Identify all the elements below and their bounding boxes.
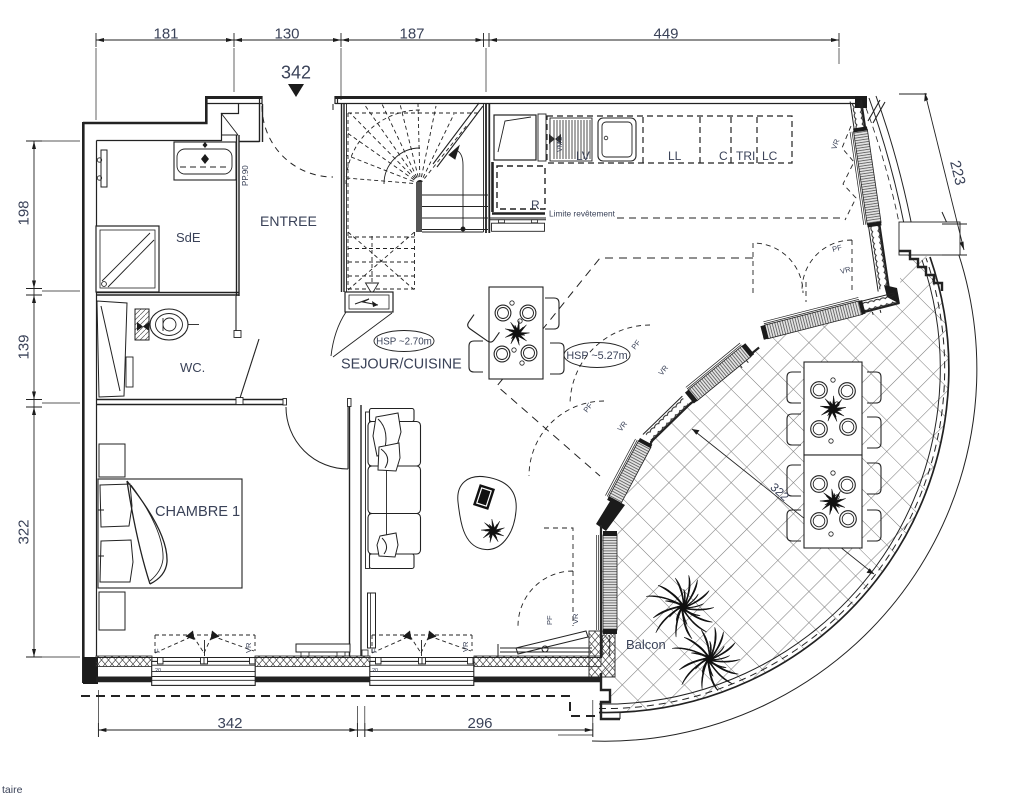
- svg-text:PF: PF: [545, 615, 554, 625]
- svg-text:ENTREE: ENTREE: [260, 213, 317, 229]
- svg-text:LC: LC: [762, 149, 778, 163]
- svg-text:322: 322: [16, 519, 33, 544]
- svg-text:R: R: [531, 198, 540, 212]
- svg-text:449: 449: [653, 26, 678, 43]
- svg-text:F: F: [153, 648, 162, 653]
- svg-text:Balcon: Balcon: [626, 637, 666, 652]
- svg-text:20: 20: [372, 668, 378, 674]
- svg-text:VMC: VMC: [557, 136, 564, 152]
- svg-text:PP.90: PP.90: [241, 165, 250, 186]
- svg-text:296: 296: [467, 715, 492, 732]
- svg-text:TRI: TRI: [736, 149, 755, 163]
- svg-text:VR: VR: [571, 613, 580, 624]
- svg-text:SEJOUR/CUISINE: SEJOUR/CUISINE: [341, 357, 462, 373]
- svg-text:130: 130: [274, 26, 299, 43]
- svg-text:187: 187: [399, 26, 424, 43]
- svg-text:LV: LV: [576, 149, 590, 163]
- svg-text:HSP ~2.70m: HSP ~2.70m: [376, 337, 432, 348]
- svg-text:139: 139: [16, 334, 33, 359]
- svg-text:F: F: [370, 648, 379, 653]
- svg-text:20: 20: [155, 668, 161, 674]
- svg-text:LL: LL: [668, 149, 682, 163]
- svg-text:WC.: WC.: [180, 360, 205, 375]
- svg-text:C: C: [719, 149, 728, 163]
- svg-text:342: 342: [281, 63, 311, 83]
- svg-text:CHAMBRE 1: CHAMBRE 1: [155, 504, 240, 520]
- svg-text:VR: VR: [244, 642, 253, 653]
- svg-text:taire: taire: [2, 784, 23, 796]
- svg-text:342: 342: [217, 715, 242, 732]
- svg-text:VR: VR: [461, 641, 470, 652]
- svg-text:Limite revêtement: Limite revêtement: [549, 209, 616, 219]
- svg-text:181: 181: [153, 26, 178, 43]
- svg-text:HSP ~5.27m: HSP ~5.27m: [566, 350, 627, 362]
- svg-text:198: 198: [16, 200, 33, 225]
- svg-text:SdE: SdE: [176, 230, 201, 245]
